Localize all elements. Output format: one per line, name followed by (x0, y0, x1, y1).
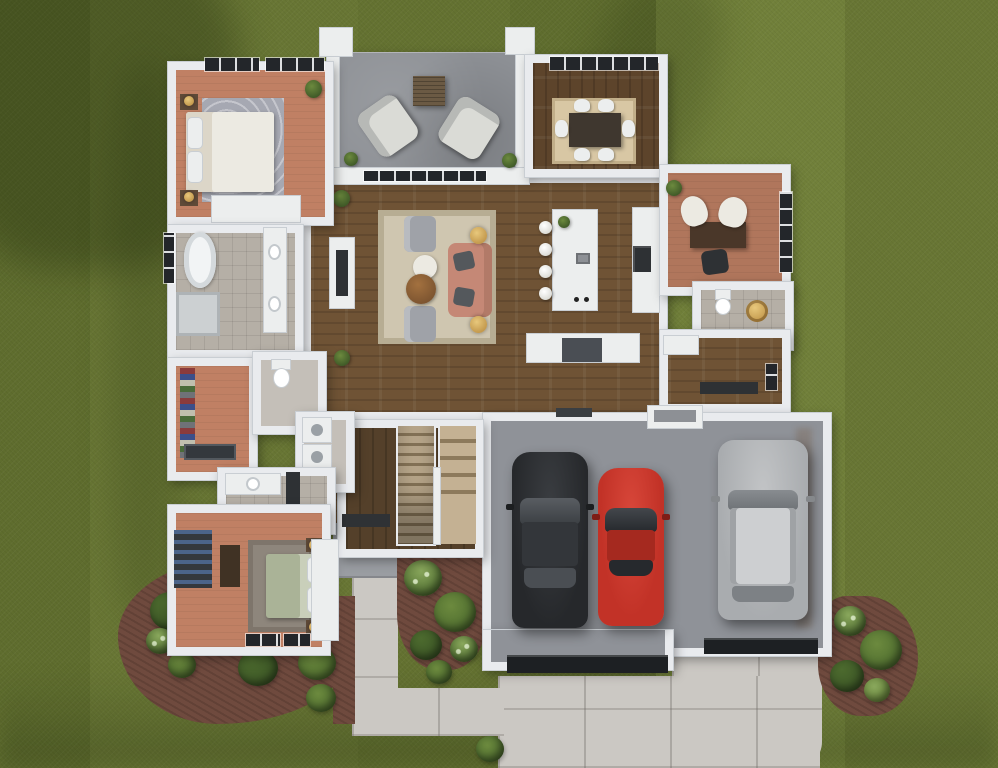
dining-table (569, 113, 621, 147)
red-coupe (598, 468, 664, 626)
dining-chair (622, 120, 635, 137)
potted-plant (344, 152, 358, 166)
car-roof (730, 508, 796, 584)
window (164, 233, 174, 283)
bush (426, 660, 452, 684)
side-mirror (662, 514, 670, 520)
window (550, 57, 658, 70)
closet-shelves (184, 444, 236, 460)
accent-table (470, 316, 487, 333)
car-roof (607, 530, 655, 562)
bush (864, 678, 890, 702)
window (246, 634, 280, 646)
silver-suv (718, 440, 808, 620)
window (364, 171, 486, 181)
stair-landing (440, 506, 476, 544)
bathtub (184, 232, 216, 288)
armchair (404, 306, 436, 342)
floor-plan-render (0, 0, 998, 768)
door-mat (342, 514, 390, 527)
side-mirror (506, 504, 514, 510)
suite-hall-closet (212, 196, 300, 222)
potted-plant (333, 190, 350, 207)
staircase (398, 426, 434, 544)
garage-alcove-floor (654, 410, 696, 422)
bush (860, 630, 902, 670)
pillow (188, 118, 202, 148)
toilet (272, 360, 290, 369)
black-sedan (512, 452, 588, 628)
toilet (274, 369, 289, 387)
bar-stool (539, 287, 552, 300)
bar-stool (539, 243, 552, 256)
window (205, 58, 259, 71)
patio-table (413, 76, 445, 106)
armchair (404, 216, 436, 252)
bush (410, 630, 442, 660)
side-mirror (586, 504, 594, 510)
lamp (184, 96, 194, 106)
tv-screen (336, 250, 348, 296)
garage-door (704, 638, 818, 654)
bush (404, 560, 442, 596)
car-roof (522, 522, 578, 566)
patio-post (320, 28, 352, 56)
ceiling-fan (746, 300, 768, 322)
garage-door (507, 655, 668, 673)
window (780, 192, 792, 272)
potted-plant (334, 350, 350, 366)
dining-chair (598, 99, 614, 112)
side-mirror (592, 514, 600, 520)
porch-sidewall (312, 540, 338, 640)
windshield (520, 498, 580, 524)
shower (176, 292, 220, 336)
toilet (716, 290, 730, 299)
window (766, 364, 777, 390)
dryer-door (311, 451, 323, 463)
bush (830, 660, 864, 692)
range-stove (633, 246, 651, 272)
bush (434, 592, 476, 632)
window (266, 58, 324, 71)
side-mirror (806, 496, 815, 502)
faucet-knob (574, 297, 579, 302)
coffee-table (406, 274, 436, 304)
office-chair (700, 248, 729, 275)
sink (268, 244, 281, 260)
stair-railing (434, 468, 440, 544)
bush (450, 636, 478, 662)
garage-entry-door (556, 408, 592, 417)
mud-bench (700, 382, 758, 394)
patio-post (506, 28, 534, 54)
washer-door (311, 424, 323, 436)
potted-plant (502, 153, 517, 168)
side-mirror (711, 496, 720, 502)
closet-shelves (174, 530, 212, 588)
rear-window (524, 568, 576, 588)
dining-chair (574, 148, 590, 161)
faucet-knob (584, 297, 589, 302)
sink (246, 477, 260, 491)
dresser (220, 545, 240, 587)
bar-stool (539, 221, 552, 234)
bush (168, 652, 196, 678)
pillow (188, 152, 202, 182)
toilet (716, 299, 730, 314)
bar-stool (539, 265, 552, 278)
dining-chair (574, 99, 590, 112)
potted-plant (666, 180, 682, 196)
driveway (498, 676, 820, 768)
windshield (605, 508, 657, 532)
rear-window (609, 560, 653, 576)
sink (268, 296, 281, 312)
bush (306, 684, 336, 712)
rear-window (732, 586, 794, 602)
accent-table (470, 227, 487, 244)
window (284, 634, 310, 646)
bush (834, 606, 866, 636)
cabinet (664, 336, 698, 354)
entry-steps (440, 426, 476, 508)
island-sink (576, 253, 590, 264)
dining-chair (598, 148, 614, 161)
bush (476, 736, 504, 762)
lamp (184, 192, 194, 202)
throw-pillow (453, 286, 476, 307)
windshield (728, 490, 798, 510)
potted-plant (305, 80, 322, 98)
bush (238, 650, 278, 686)
potted-plant (558, 216, 570, 228)
front-walkway (352, 688, 504, 736)
bench-counter (562, 338, 602, 362)
dining-chair (555, 120, 568, 137)
